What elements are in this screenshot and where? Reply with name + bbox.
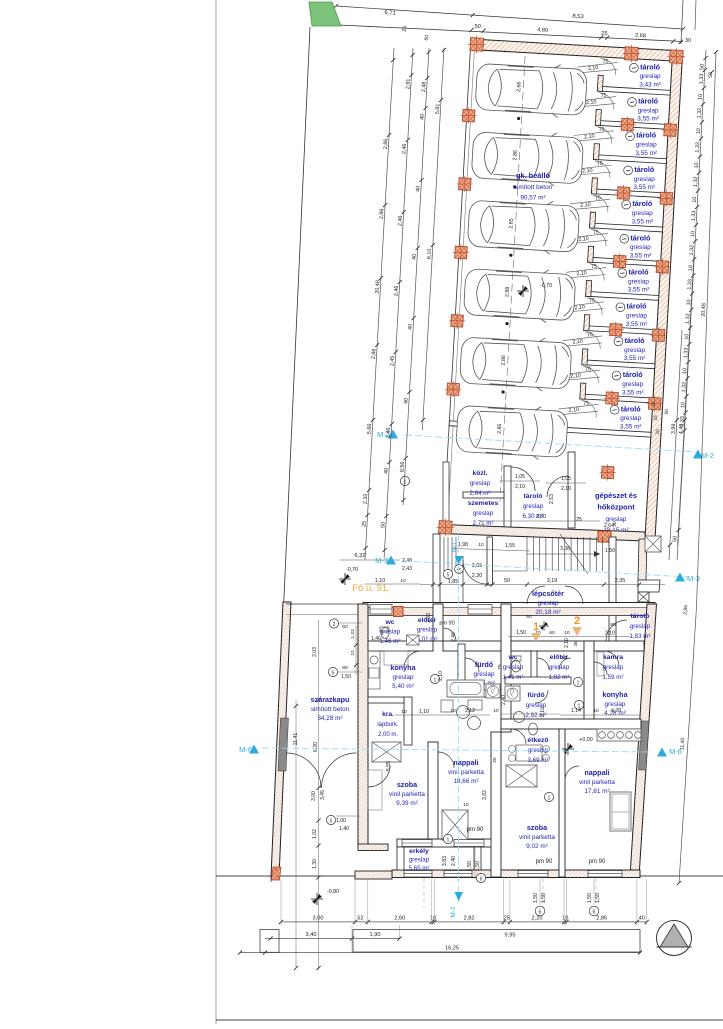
svg-text:konyha: konyha [602,690,628,699]
svg-text:34,28 m²: 34,28 m² [317,715,342,722]
svg-text:6: 6 [539,910,542,916]
svg-text:16,25: 16,25 [445,946,459,952]
svg-text:tároló: tároló [632,199,653,208]
svg-text:2,46: 2,46 [402,144,409,155]
svg-text:2,88: 2,88 [505,287,512,298]
svg-text:3,83: 3,83 [442,856,448,866]
svg-text:1,32: 1,32 [697,108,704,119]
svg-text:2,10: 2,10 [582,168,593,175]
svg-text:vinil parketta: vinil parketta [519,834,555,841]
svg-text:M-2: M-2 [701,451,714,460]
svg-text:pm 90: pm 90 [589,859,606,865]
svg-text:2,12: 2,12 [465,708,475,714]
svg-text:2,46: 2,46 [451,632,457,642]
svg-text:szoba: szoba [397,780,418,789]
svg-text:2,85: 2,85 [508,218,515,229]
svg-text:11,40: 11,40 [680,737,687,750]
svg-text:10: 10 [463,802,469,807]
svg-text:96: 96 [610,622,616,628]
svg-text:2,86: 2,86 [379,209,386,220]
svg-text:90: 90 [342,665,348,671]
svg-text:5: 5 [330,818,333,824]
svg-text:25: 25 [653,415,659,421]
svg-text:tároló: tároló [636,131,657,140]
svg-text:1: 1 [447,837,450,843]
svg-text:1,50: 1,50 [341,674,351,680]
svg-text:10: 10 [350,650,356,656]
svg-text:2,46: 2,46 [397,216,404,227]
svg-text:fürdő: fürdő [527,692,544,699]
svg-text:2,10: 2,10 [438,671,444,681]
svg-text:2,5: 2,5 [561,655,568,661]
svg-text:2,10: 2,10 [572,339,583,346]
svg-text:greslap: greslap [638,107,659,114]
svg-text:20,48: 20,48 [375,280,382,294]
svg-text:2,10: 2,10 [574,304,585,311]
svg-text:1,30: 1,30 [312,859,318,869]
svg-text:40: 40 [408,324,414,330]
svg-text:Fő u. 91.: Fő u. 91. [352,583,390,594]
svg-text:2,10: 2,10 [540,707,546,717]
svg-text:6: 6 [480,877,483,883]
svg-text:40: 40 [403,398,409,404]
svg-text:25: 25 [361,521,367,527]
svg-text:wc: wc [384,619,394,626]
svg-text:M-3: M-3 [687,574,700,583]
svg-text:3,19: 3,19 [547,578,558,584]
svg-text:tároló: tároló [625,336,646,345]
svg-text:2,45: 2,45 [390,356,397,367]
svg-text:75: 75 [596,161,603,168]
svg-text:10: 10 [696,128,702,134]
svg-text:M-3: M-3 [375,556,388,565]
svg-text:50: 50 [672,536,678,542]
svg-text:greslap: greslap [523,503,544,510]
svg-text:3,45: 3,45 [320,790,326,800]
svg-text:10: 10 [564,630,570,636]
svg-text:1,50: 1,50 [587,893,593,903]
svg-text:gk. beálló: gk. beálló [516,171,551,180]
svg-text:gépészet és: gépészet és [595,491,637,500]
svg-text:1,50: 1,50 [541,893,547,903]
svg-text:greslap: greslap [473,510,494,517]
svg-text:szemetes: szemetes [468,500,499,507]
svg-text:45: 45 [573,641,578,647]
svg-text:tároló: tároló [638,97,659,106]
svg-text:greslap: greslap [636,142,657,149]
svg-text:20,48: 20,48 [701,303,708,317]
svg-text:1,05: 1,05 [561,476,571,482]
svg-text:3,98: 3,98 [671,424,678,435]
svg-text:kra.: kra. [382,711,394,718]
svg-text:1,82 m²: 1,82 m² [549,674,570,681]
svg-text:2: 2 [333,622,336,628]
svg-text:+: + [274,868,278,874]
svg-text:tároló: tároló [631,613,650,620]
svg-text:greslap: greslap [630,244,651,251]
svg-text:erkély: erkély [409,848,429,855]
svg-text:2,82: 2,82 [464,915,475,921]
svg-text:-0,70: -0,70 [346,567,358,573]
svg-text:30: 30 [612,521,618,527]
svg-text:-0,80: -0,80 [327,889,339,895]
svg-text:3,00: 3,00 [313,915,324,921]
svg-text:simított beton: simított beton [311,706,350,713]
svg-text:1,10: 1,10 [419,709,429,715]
svg-text:greslap: greslap [417,627,438,634]
svg-text:2,35: 2,35 [615,578,626,584]
svg-text:9,39 m²: 9,39 m² [396,800,418,807]
svg-text:3,55 m²: 3,55 m² [630,253,652,260]
svg-text:1,33: 1,33 [695,142,702,153]
svg-text:10: 10 [493,708,499,714]
svg-text:1,46: 1,46 [371,636,381,642]
svg-text:2,86: 2,86 [683,605,690,615]
svg-text:1,50: 1,50 [605,548,615,554]
svg-text:vinil parketta: vinil parketta [579,779,615,786]
svg-text:75: 75 [600,93,607,100]
svg-text:2,86: 2,86 [383,139,390,150]
svg-text:75: 75 [585,366,592,373]
svg-text:75: 75 [598,127,605,134]
svg-text:30: 30 [685,38,691,44]
svg-text:2,35: 2,35 [363,494,370,505]
svg-text:2,10: 2,10 [588,65,599,72]
svg-text:greslap: greslap [626,313,647,320]
svg-text:3,08: 3,08 [560,546,570,552]
svg-text:25: 25 [576,517,582,523]
svg-text:pm 90: pm 90 [439,621,454,627]
svg-text:40: 40 [383,468,389,474]
svg-text:greslap: greslap [632,210,653,217]
svg-text:1,05: 1,05 [515,474,525,480]
svg-text:vinil parketta: vinil parketta [448,769,484,776]
svg-text:25: 25 [402,25,409,32]
svg-text:lapburk.: lapburk. [377,722,399,728]
svg-text:1,46 m²: 1,46 m² [380,638,401,645]
svg-text:3,82: 3,82 [482,790,488,800]
svg-text:10: 10 [430,915,436,921]
svg-text:-0,70: -0,70 [540,283,552,289]
svg-text:tároló: tároló [621,404,642,413]
svg-text:tároló: tároló [627,302,648,311]
svg-text:2,65: 2,65 [472,563,483,569]
svg-text:1: 1 [548,795,551,801]
svg-text:10: 10 [692,197,698,203]
svg-text:2,00 m.: 2,00 m. [378,732,398,738]
svg-text:6,20: 6,20 [313,742,319,752]
svg-text:3,55 m²: 3,55 m² [631,218,653,225]
svg-text:nappali: nappali [453,758,478,767]
svg-text:50: 50 [504,578,510,584]
svg-text:2,46: 2,46 [385,428,392,439]
svg-text:1,85: 1,85 [448,579,459,585]
svg-text:pm 90: pm 90 [467,827,484,833]
svg-text:tároló: tároló [630,233,651,242]
svg-text:hőközpont: hőközpont [597,503,635,512]
svg-text:25: 25 [601,31,608,37]
svg-text:6,32: 6,32 [355,553,366,559]
svg-text:20: 20 [655,429,661,435]
svg-text:10: 10 [593,708,599,714]
svg-text:60: 60 [342,624,348,630]
svg-text:tároló: tároló [623,370,644,379]
svg-text:8,56: 8,56 [400,462,407,473]
svg-text:1,14: 1,14 [571,708,581,714]
svg-text:5: 5 [447,573,450,579]
svg-text:75: 75 [595,195,602,202]
svg-text:2,64 m²: 2,64 m² [470,490,491,497]
svg-text:2,03: 2,03 [312,647,318,657]
svg-text:2,60: 2,60 [394,915,405,921]
svg-text:3,55 m²: 3,55 m² [622,389,644,396]
svg-text:2: 2 [574,615,580,627]
svg-text:3,69 m²: 3,69 m² [528,757,549,764]
svg-text:2,91: 2,91 [405,79,412,90]
svg-text:50: 50 [380,522,386,528]
svg-text:3,43 m²: 3,43 m² [639,82,661,89]
svg-text:10: 10 [690,231,696,237]
svg-text:75: 75 [497,664,503,670]
svg-text:M-1: M-1 [450,906,457,918]
svg-text:40: 40 [412,254,418,260]
svg-text:2,86: 2,86 [371,349,378,360]
svg-text:1,50: 1,50 [467,861,473,871]
svg-text:1: 1 [577,680,580,686]
svg-text:2,86: 2,86 [501,355,508,366]
svg-text:1,40: 1,40 [339,826,349,832]
svg-text:2,10: 2,10 [564,638,570,648]
svg-text:4,80: 4,80 [537,27,548,34]
svg-text:+0,00: +0,00 [579,737,592,743]
svg-text:2,10: 2,10 [570,373,581,380]
svg-text:10: 10 [450,708,456,714]
svg-text:2,10: 2,10 [515,484,525,490]
svg-text:2,20: 2,20 [532,915,543,921]
svg-text:kamra: kamra [603,654,623,661]
svg-text:lépcsőtér: lépcsőtér [532,589,564,598]
svg-text:25: 25 [504,915,510,921]
svg-text:2,85: 2,85 [497,423,504,434]
svg-text:5: 5 [332,671,335,677]
svg-text:3,55 m²: 3,55 m² [635,150,657,157]
svg-text:greslap: greslap [622,381,643,388]
svg-text:50: 50 [708,72,714,78]
svg-text:1,02: 1,02 [312,829,318,839]
svg-text:greslap: greslap [620,415,641,422]
svg-text:3,55 m²: 3,55 m² [620,424,642,431]
svg-text:1,50: 1,50 [475,861,481,871]
svg-text:1,41 m²: 1,41 m² [503,674,524,681]
svg-text:5,40 m²: 5,40 m² [392,683,414,690]
svg-text:90: 90 [664,409,670,415]
svg-text:20: 20 [651,401,657,407]
svg-text:3,55 m²: 3,55 m² [633,184,655,191]
svg-text:2,48: 2,48 [421,82,428,93]
svg-text:6,10: 6,10 [427,249,434,260]
svg-text:3,55 m²: 3,55 m² [624,355,646,362]
svg-text:2,03: 2,03 [426,613,432,623]
svg-text:17,81 m²: 17,81 m² [584,788,609,795]
svg-text:9,02 m²: 9,02 m² [526,843,548,850]
svg-text:2,66: 2,66 [516,81,523,92]
svg-text:3,00: 3,00 [311,791,317,801]
svg-text:1: 1 [434,677,437,683]
svg-text:étkező: étkező [527,737,548,744]
svg-text:greslap: greslap [605,701,626,708]
svg-text:10: 10 [698,94,704,100]
svg-text:vinil parketta: vinil parketta [389,791,425,798]
svg-text:10: 10 [400,578,406,584]
svg-text:1,98: 1,98 [458,542,468,548]
svg-text:5,55: 5,55 [386,761,392,771]
svg-text:2,86: 2,86 [512,150,519,161]
svg-text:greslap: greslap [409,857,430,864]
svg-text:nappali: nappali [584,768,609,777]
svg-text:10: 10 [694,162,700,168]
svg-text:greslap: greslap [538,600,559,607]
svg-text:2,10: 2,10 [578,236,589,243]
svg-text:40: 40 [419,114,425,120]
svg-text:2,53: 2,53 [549,494,555,504]
svg-text:60: 60 [549,630,555,636]
svg-text:1,55: 1,55 [505,543,515,549]
svg-text:50: 50 [526,614,532,620]
svg-text:2,46: 2,46 [394,286,401,297]
svg-text:1,83 m²: 1,83 m² [630,633,651,640]
svg-text:5,66: 5,66 [367,424,374,435]
svg-text:9,95: 9,95 [505,933,516,939]
svg-text:konyha: konyha [390,663,416,672]
svg-text:+: + [276,875,280,881]
svg-text:2,10: 2,10 [605,631,615,637]
svg-text:greslap: greslap [393,674,414,681]
svg-text:3,55 m²: 3,55 m² [626,321,648,328]
svg-text:tároló: tároló [634,165,655,174]
svg-text:2,10: 2,10 [576,270,587,277]
svg-text:greslap: greslap [640,73,661,80]
svg-text:75: 75 [591,264,598,271]
svg-text:simított beton: simított beton [514,184,553,191]
svg-text:1,33: 1,33 [699,74,706,85]
svg-text:3,55 m²: 3,55 m² [628,287,650,294]
svg-text:1: 1 [533,621,539,633]
svg-text:75: 75 [602,59,609,66]
svg-text:2,86: 2,86 [596,915,607,921]
svg-text:pm 90: pm 90 [536,859,553,865]
svg-text:3,40: 3,40 [306,932,317,938]
svg-text:40: 40 [415,186,421,192]
svg-text:2,50: 2,50 [536,514,546,520]
svg-text:greslap: greslap [474,671,495,678]
svg-text:greslap: greslap [634,176,655,183]
svg-text:fürdő: fürdő [475,660,494,669]
svg-text:2,68: 2,68 [635,33,646,40]
svg-text:20,18 m²: 20,18 m² [535,609,560,616]
svg-text:2,40: 2,40 [501,695,507,705]
svg-text:6: 6 [593,910,596,916]
svg-text:1,50: 1,50 [533,893,539,903]
svg-text:10: 10 [478,542,484,548]
svg-text:tároló: tároló [629,268,650,277]
svg-text:2,10: 2,10 [584,133,595,140]
svg-text:2,43: 2,43 [402,566,412,572]
svg-text:2,10: 2,10 [568,407,579,414]
svg-text:1,00: 1,00 [336,818,346,824]
svg-text:2,10: 2,10 [580,202,591,209]
svg-text:8,53: 8,53 [572,14,584,21]
svg-text:közl.: közl. [472,470,487,477]
svg-text:tároló: tároló [640,62,661,71]
svg-text:1,50: 1,50 [516,630,526,636]
svg-text:2,30: 2,30 [472,573,483,579]
svg-text:75: 75 [593,229,600,236]
svg-text:52: 52 [357,915,363,921]
svg-text:75: 75 [587,332,594,339]
svg-text:tároló: tároló [524,493,543,500]
svg-text:40: 40 [639,915,645,921]
svg-text:75: 75 [583,400,590,407]
svg-text:szoba: szoba [527,823,548,832]
svg-text:90,57 m²: 90,57 m² [520,195,545,202]
svg-text:1,32: 1,32 [689,245,696,256]
svg-text:1,59 m²: 1,59 m² [603,674,624,681]
svg-text:2,40: 2,40 [451,856,457,866]
svg-text:1,33: 1,33 [691,211,698,222]
svg-text:5,81: 5,81 [435,104,442,115]
svg-text:2,10: 2,10 [586,99,597,106]
svg-text:greslap: greslap [624,347,645,354]
svg-text:1,23: 1,23 [350,629,356,639]
svg-text:10: 10 [562,915,568,921]
svg-text:3,55 m²: 3,55 m² [637,116,659,123]
svg-text:greslap: greslap [630,623,651,630]
svg-text:1,90: 1,90 [370,932,381,938]
svg-text:szárazkapu: szárazkapu [311,695,350,704]
svg-text:10: 10 [401,709,407,715]
svg-text:1,32: 1,32 [693,176,700,187]
svg-text:50: 50 [474,24,481,30]
svg-text:5,01 m²: 5,01 m² [417,636,438,643]
svg-text:18,66 m²: 18,66 m² [453,778,478,785]
svg-text:75: 75 [589,298,596,305]
svg-text:4,40: 4,40 [678,424,685,435]
svg-text:4,28: 4,28 [611,708,621,714]
svg-text:50: 50 [699,64,705,70]
svg-text:M-1: M-1 [452,541,458,552]
svg-text:25: 25 [492,757,497,763]
svg-text:2,10: 2,10 [561,486,571,492]
svg-text:greslap: greslap [470,480,491,487]
svg-text:1,50: 1,50 [595,893,601,903]
svg-text:greslap: greslap [628,278,649,285]
svg-text:6,71: 6,71 [384,10,396,17]
